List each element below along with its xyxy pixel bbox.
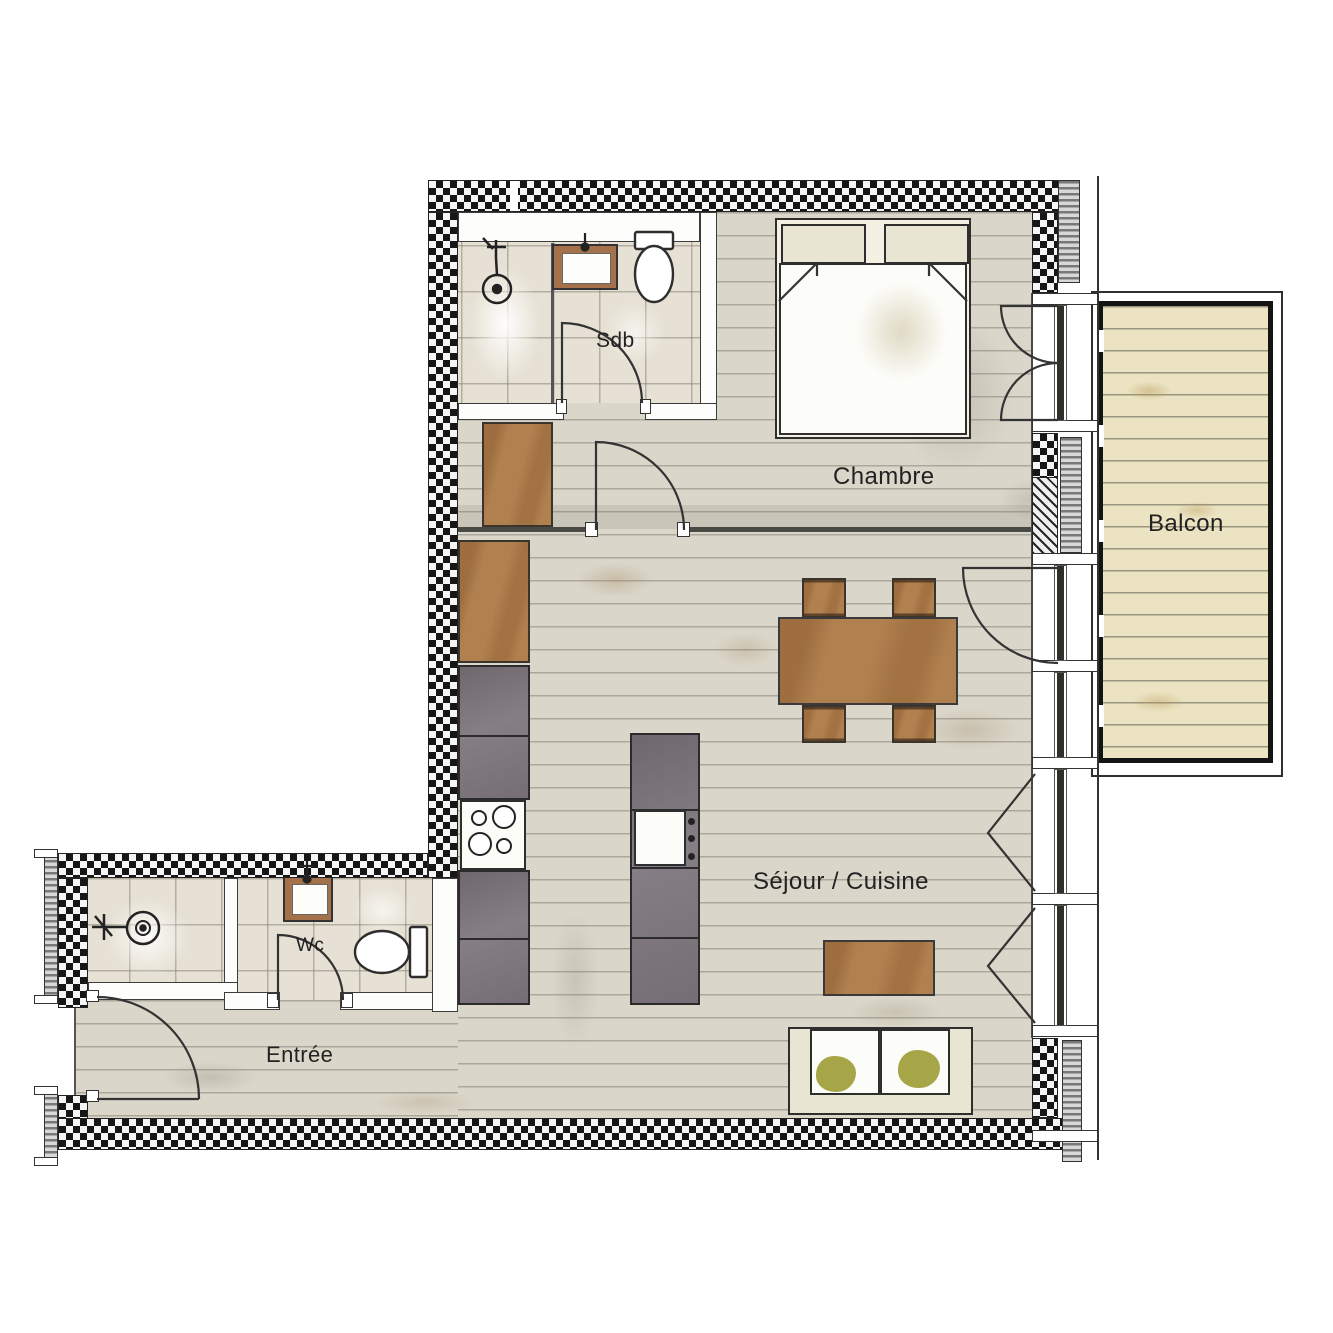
entrance-door-swing xyxy=(97,997,199,1099)
room-label-balcon: Balcon xyxy=(1148,510,1224,538)
chambre-balcony-door-swing xyxy=(1001,306,1058,420)
hall-door-swing xyxy=(596,442,684,530)
room-label-entree: Entrée xyxy=(266,1042,333,1068)
room-label-wc: Wc xyxy=(296,935,324,957)
faucet-marks xyxy=(300,233,589,883)
casement-window-symbol xyxy=(988,774,1035,1023)
shower-fixture xyxy=(92,912,159,944)
room-label-chambre: Chambre xyxy=(833,463,935,491)
sdb-toilet xyxy=(635,232,673,302)
plan-linework xyxy=(0,0,1333,1333)
bed-fold-lines xyxy=(779,263,967,301)
room-label-sdb: Sdb xyxy=(596,329,635,353)
sdb-shower-fixture xyxy=(483,238,511,303)
wc-toilet xyxy=(355,927,427,977)
sejour-balcony-door-swing xyxy=(963,568,1058,663)
floor-plan: Sdb Chambre Balcon Séjour / Cuisine Wc E… xyxy=(0,0,1333,1333)
room-label-sejour-cuisine: Séjour / Cuisine xyxy=(753,868,929,896)
